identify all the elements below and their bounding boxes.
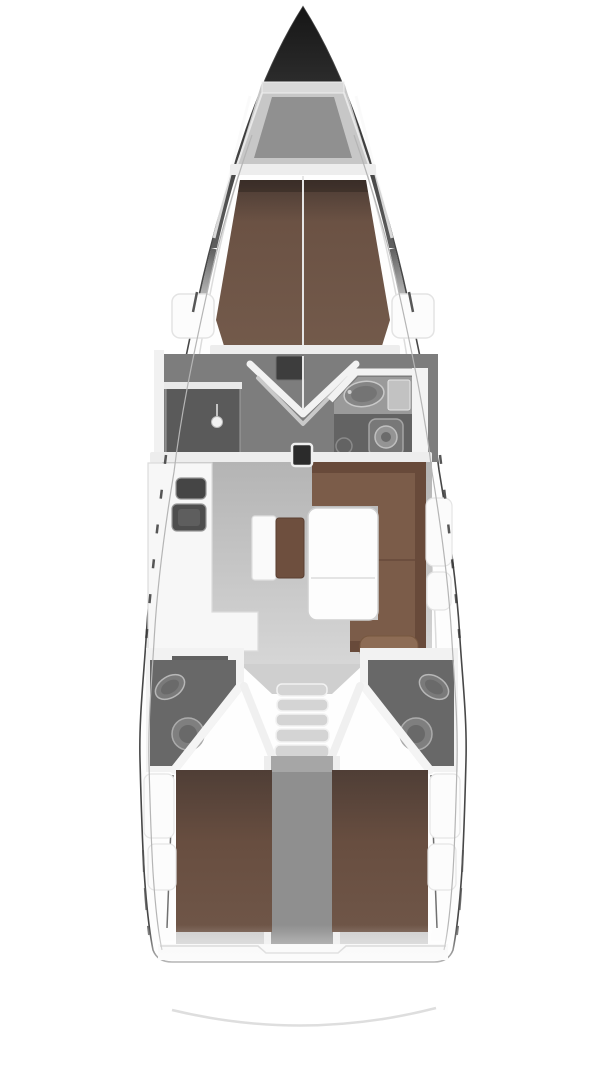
anchor-locker-lid-bar — [262, 82, 344, 93]
shower-wall-band — [164, 382, 242, 389]
forward-head-wall-starboard — [412, 368, 428, 464]
galley-sink-icon — [176, 478, 206, 499]
engine-corridor — [268, 756, 336, 948]
stern-fade — [96, 925, 512, 1020]
step-tread — [276, 729, 329, 742]
dressing-wall-port — [154, 350, 164, 462]
corridor-landing — [271, 756, 333, 772]
aft-berth-port — [176, 770, 272, 932]
navigation-bench — [252, 516, 304, 580]
yacht-floor-plan-page — [0, 0, 608, 1080]
salon-table — [308, 508, 378, 620]
aft-berth-starboard — [332, 770, 428, 932]
side-shelf-forward-port — [172, 294, 214, 338]
bench-frame — [252, 516, 276, 580]
galley-sink2-basin — [178, 509, 200, 526]
yacht-floor-plan — [0, 0, 608, 1080]
side-shelf-salon-starboard-2 — [427, 572, 451, 610]
forward-bulkhead — [230, 164, 376, 175]
side-shelf-aft-port — [144, 774, 174, 838]
aft-head-port-vanity-edge — [172, 656, 228, 660]
mast-post — [292, 444, 312, 466]
forward-head — [330, 368, 428, 464]
table-top — [308, 508, 378, 620]
side-shelf-forward-starboard — [392, 294, 434, 338]
forward-head-locker — [388, 380, 410, 410]
step-tread — [277, 699, 328, 711]
vanity-seat — [276, 356, 304, 380]
step-tread — [276, 714, 328, 726]
step-tread — [277, 684, 327, 696]
shower-head-icon — [212, 417, 223, 428]
bench-cushion — [276, 518, 304, 578]
shower-stall — [164, 382, 242, 460]
forward-head-toilet-icon — [369, 419, 403, 456]
